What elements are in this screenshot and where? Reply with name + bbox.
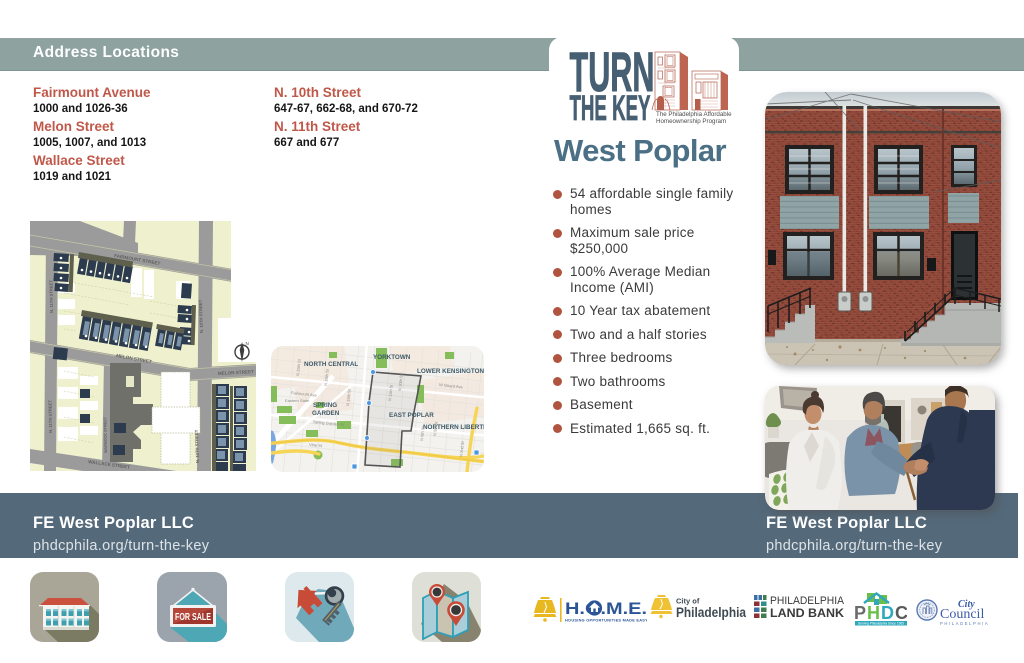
svg-text:EAST POPLAR: EAST POPLAR — [389, 412, 434, 419]
svg-text:N. 11TH STREET: N. 11TH STREET — [48, 280, 54, 314]
svg-text:Council: Council — [940, 607, 984, 622]
svg-text:THE KEY: THE KEY — [570, 88, 651, 128]
svg-text:N. 11TH STREET: N. 11TH STREET — [47, 400, 53, 434]
svg-text:PHILADELPHIA: PHILADELPHIA — [940, 621, 989, 626]
svg-text:WARNOCK STREET: WARNOCK STREET — [103, 416, 108, 453]
svg-text:Eastern State: Eastern State — [285, 398, 310, 403]
svg-text:P: P — [855, 603, 866, 623]
svg-text:GARDEN: GARDEN — [312, 410, 340, 417]
svg-text:LOWER KENSINGTON: LOWER KENSINGTON — [417, 368, 484, 375]
svg-text:YORKTOWN: YORKTOWN — [373, 354, 411, 361]
svg-text:Serving Philadelphia Since 196: Serving Philadelphia Since 1965 — [858, 622, 904, 626]
svg-text:H: H — [867, 603, 880, 623]
svg-text:SPRING: SPRING — [313, 402, 337, 409]
svg-text:C: C — [895, 603, 907, 623]
svg-text:N: N — [246, 341, 249, 346]
svg-text:HOUSING OPPORTUNITIES MADE EAS: HOUSING OPPORTUNITIES MADE EASY — [565, 618, 647, 623]
svg-text:LAND BANK: LAND BANK — [770, 606, 844, 620]
svg-text:FOR SALE: FOR SALE — [175, 611, 211, 623]
svg-text:H.O.M.E.: H.O.M.E. — [565, 600, 647, 618]
svg-text:D: D — [881, 603, 894, 623]
svg-text:NORTH CENTRAL: NORTH CENTRAL — [304, 361, 358, 368]
svg-text:Philadelphia: Philadelphia — [676, 605, 746, 620]
